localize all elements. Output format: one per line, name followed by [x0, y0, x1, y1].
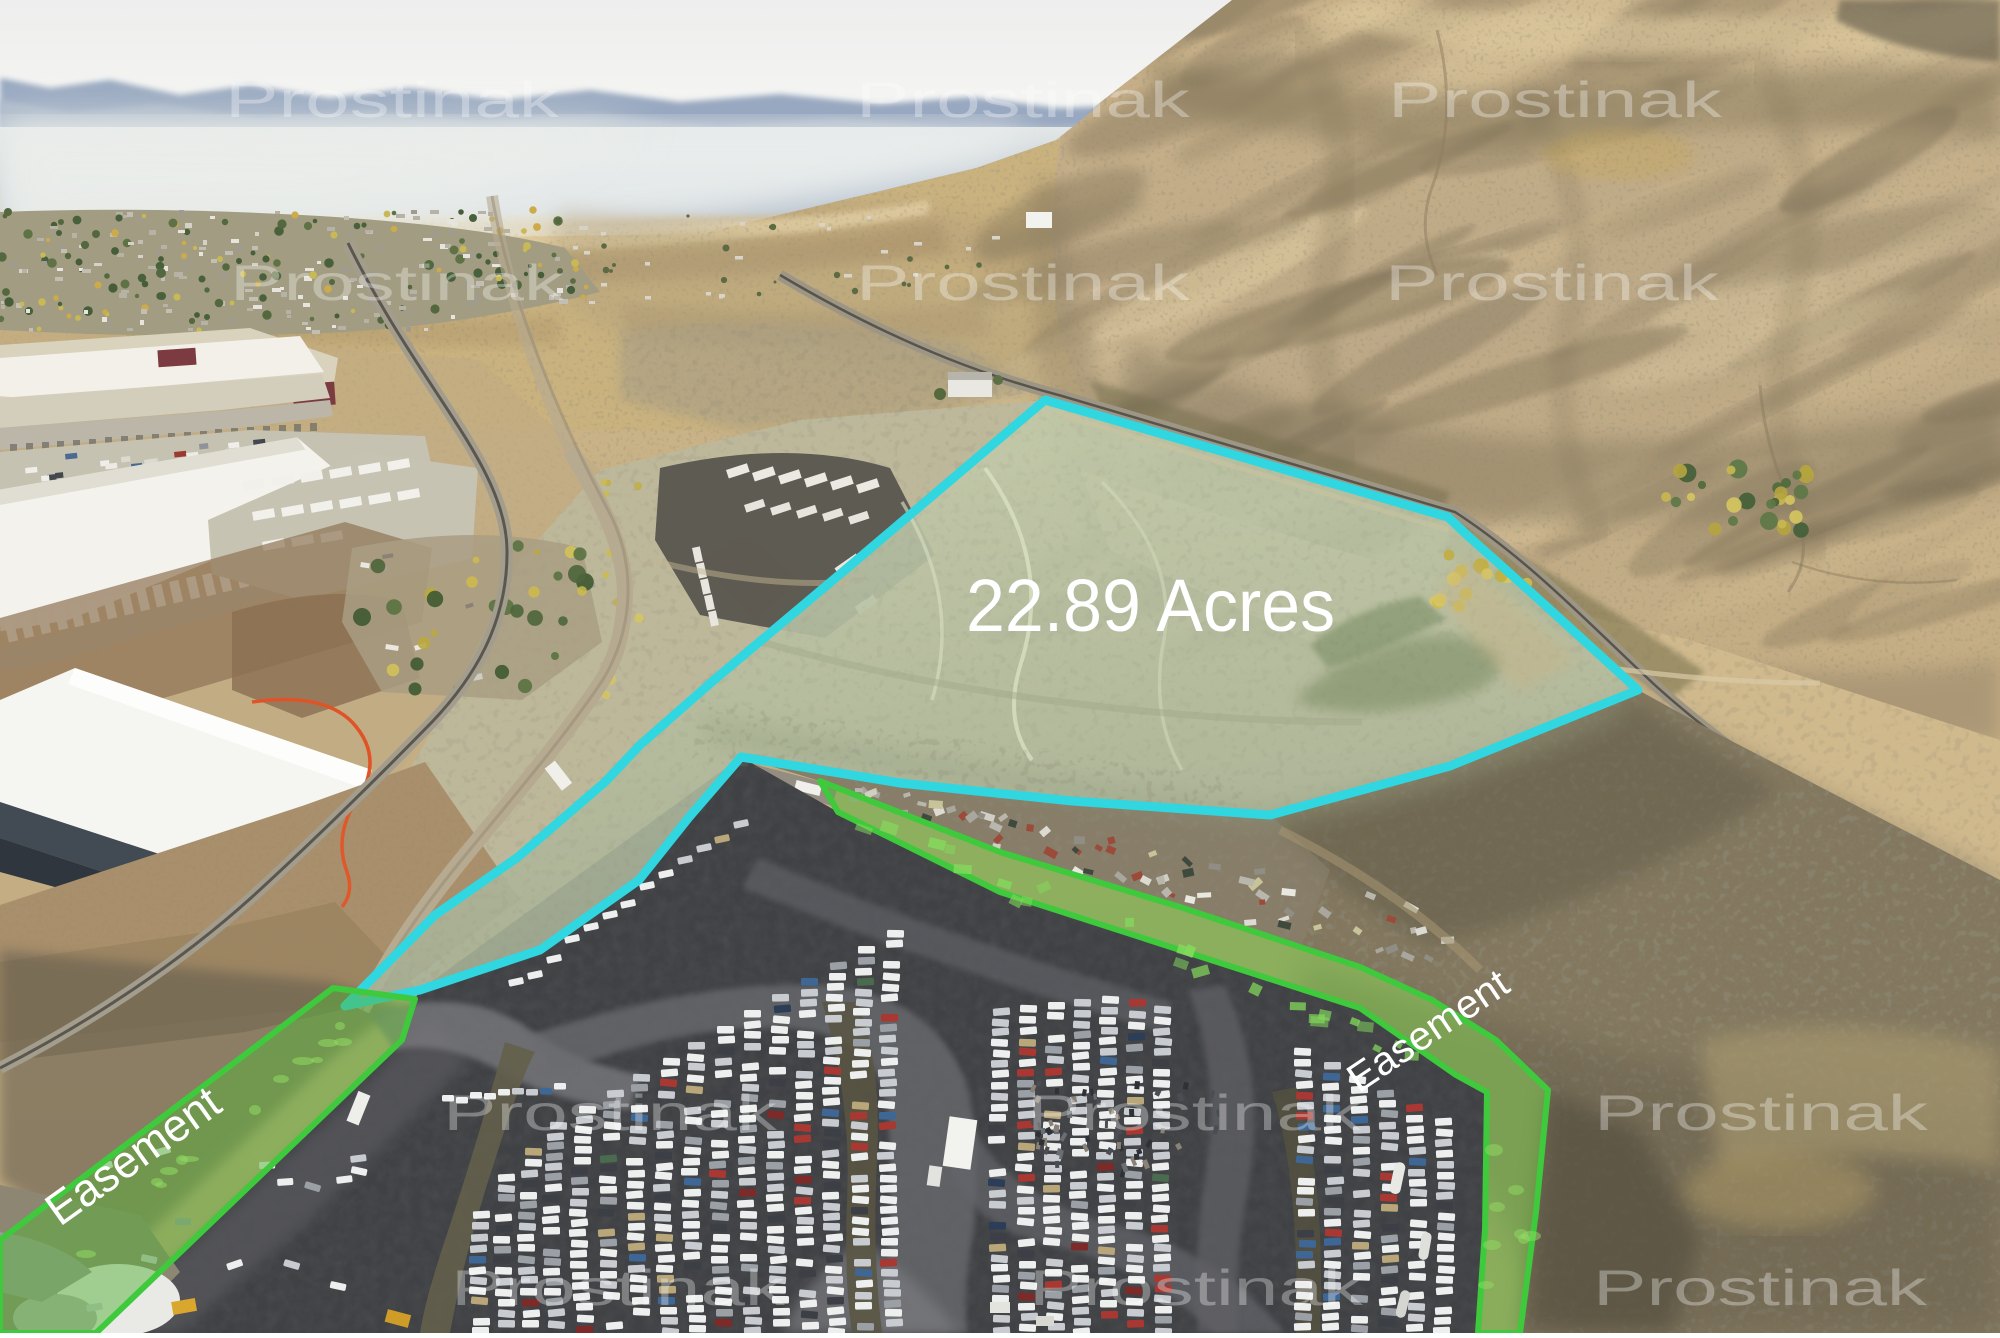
svg-text:Prostinak: Prostinak — [451, 1260, 787, 1316]
svg-text:Prostinak: Prostinak — [856, 255, 1192, 311]
svg-text:Prostinak: Prostinak — [1594, 1085, 1930, 1141]
svg-text:Prostinak: Prostinak — [1385, 255, 1721, 311]
svg-text:Prostinak: Prostinak — [225, 72, 561, 128]
svg-text:Prostinak: Prostinak — [1593, 1260, 1929, 1316]
svg-text:Prostinak: Prostinak — [1029, 1260, 1365, 1316]
svg-text:Prostinak: Prostinak — [1027, 1085, 1363, 1141]
svg-text:Prostinak: Prostinak — [443, 1085, 779, 1141]
svg-text:Prostinak: Prostinak — [1388, 72, 1724, 128]
svg-text:22.89 Acres: 22.89 Acres — [966, 564, 1335, 647]
svg-text:Prostinak: Prostinak — [230, 255, 566, 311]
svg-text:Prostinak: Prostinak — [856, 72, 1192, 128]
